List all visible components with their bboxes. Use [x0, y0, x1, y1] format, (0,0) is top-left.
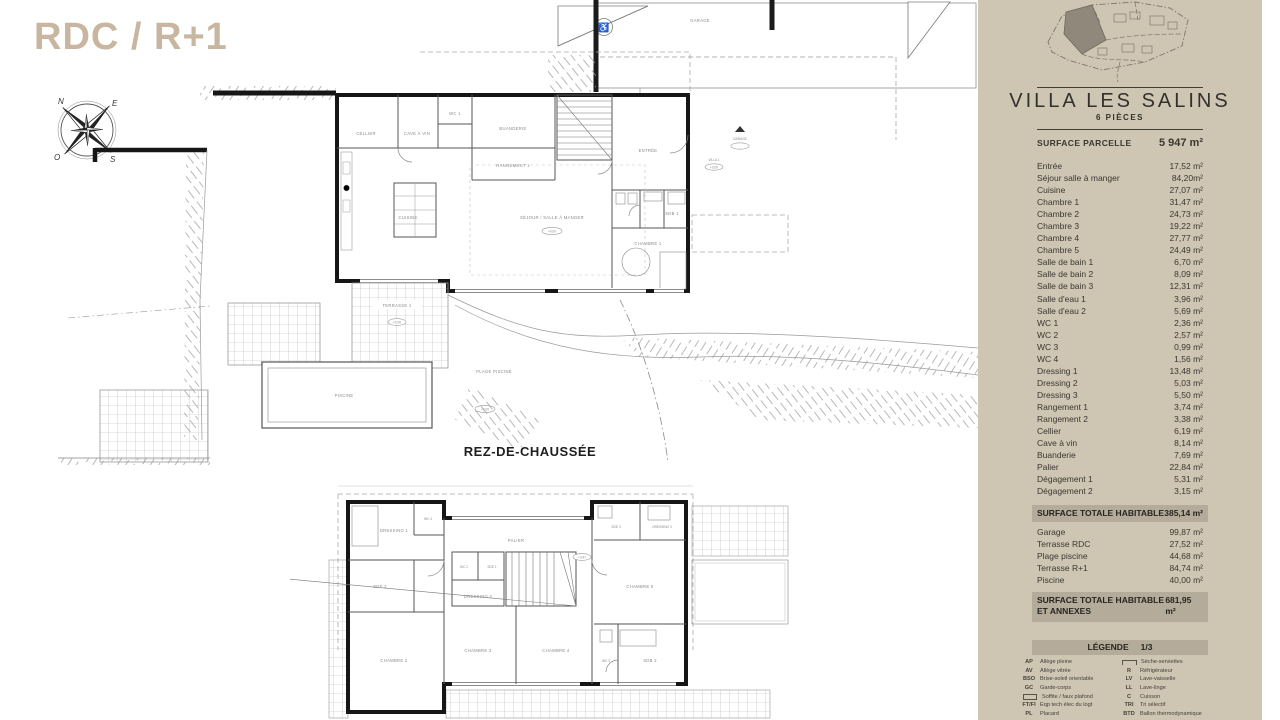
annex-row: Piscine 40,00 m² [1037, 574, 1203, 586]
room-row: WC 3 0,99 m² [1037, 341, 1203, 353]
room-label: ENTRÉE [639, 148, 658, 153]
room-row-value: 6,70 m² [1174, 256, 1203, 268]
annex-row-label: Piscine [1037, 574, 1064, 586]
room-row-label: Salle d'eau 2 [1037, 305, 1086, 317]
divider [1037, 87, 1203, 88]
room-row-value: 3,74 m² [1174, 401, 1203, 413]
legend-label: Allège vitrée [1040, 668, 1071, 674]
total-annexes-value: 681,95 m² [1165, 595, 1203, 622]
annex-row-label: Terrasse R+1 [1037, 562, 1088, 574]
level-marker: +3,47 [578, 556, 586, 560]
room-label: SDE 1 [487, 565, 496, 569]
room-row-value: 5,03 m² [1174, 377, 1203, 389]
room-row: Chambre 1 31,47 m² [1037, 196, 1203, 208]
room-label: BUANDERIE [499, 126, 526, 131]
room-row: Dressing 2 5,03 m² [1037, 377, 1203, 389]
room-label: CELLIER [356, 131, 376, 136]
room-label: CAVE À VIN [404, 131, 430, 136]
room-row-label: Cave à vin [1037, 437, 1077, 449]
annex-row-label: Plage piscine [1037, 550, 1088, 562]
room-row: Chambre 3 19,22 m² [1037, 220, 1203, 232]
level-marker: +0,00 [710, 166, 718, 170]
room-label: PISCINE [335, 393, 354, 398]
legend-row: Sèche-serviettes [1118, 658, 1228, 667]
room-row-value: 24,49 m² [1169, 244, 1203, 256]
room-row: Dressing 1 13,48 m² [1037, 365, 1203, 377]
room-row-value: 0,99 m² [1174, 341, 1203, 353]
room-row-label: Rangement 1 [1037, 401, 1088, 413]
legend-row: LL Lave-linge [1118, 684, 1228, 693]
total-annexes-label: SURFACE TOTALE HABITABLE ET ANNEXES [1037, 595, 1165, 622]
room-row-value: 12,31 m² [1169, 280, 1203, 292]
total-annexes-bar: SURFACE TOTALE HABITABLE ET ANNEXES 681,… [1032, 592, 1208, 622]
room-row-label: Chambre 3 [1037, 220, 1079, 232]
room-row: Cellier 6,19 m² [1037, 425, 1203, 437]
annex-row-label: Terrasse RDC [1037, 538, 1090, 550]
room-row-label: Dégagement 2 [1037, 485, 1093, 497]
legend-abbr: LV [1118, 676, 1140, 682]
room-label: WC 3 [602, 659, 610, 663]
legend-label: Allège pleine [1040, 659, 1072, 665]
room-row-label: Entrée [1037, 160, 1062, 172]
room-row: Chambre 5 24,49 m² [1037, 244, 1203, 256]
room-label: SÉJOUR / SALLE À MANGER [520, 215, 584, 220]
room-row-value: 17,52 m² [1169, 160, 1203, 172]
room-row: Séjour salle à manger 84,20m² [1037, 172, 1203, 184]
room-row: WC 1 2,36 m² [1037, 317, 1203, 329]
room-row-value: 24,73 m² [1169, 208, 1203, 220]
annex-row-label: Garage [1037, 526, 1065, 538]
room-row-value: 5,69 m² [1174, 305, 1203, 317]
annex-row-value: 84,74 m² [1169, 562, 1203, 574]
room-row-value: 19,22 m² [1169, 220, 1203, 232]
sidebar: VILLA LES SALINS 6 PIÈCES SURFACE PARCEL… [978, 0, 1262, 720]
legend-abbr: AV [1018, 668, 1040, 674]
legend-label: Tri sélectif [1140, 702, 1165, 708]
legend-label: Cuisson [1140, 694, 1160, 700]
room-row-label: WC 3 [1037, 341, 1058, 353]
annex-row-value: 44,68 m² [1169, 550, 1203, 562]
total-habitable-bar: SURFACE TOTALE HABITABLE 385,14 m² [1032, 505, 1208, 522]
legend-label: Brise-soleil orientable [1040, 676, 1093, 682]
room-row-label: Salle de bain 1 [1037, 256, 1093, 268]
room-row-value: 84,20m² [1172, 172, 1203, 184]
parcel-value: 5 947 m² [1159, 137, 1203, 149]
room-label: DRESSING 1 [380, 528, 409, 533]
legend-label: Placard [1040, 711, 1059, 717]
legend-label: Garde-corps [1040, 685, 1071, 691]
room-row-label: Dressing 3 [1037, 389, 1078, 401]
parcel-label: SURFACE PARCELLE [1037, 138, 1132, 148]
room-row-label: Rangement 2 [1037, 413, 1088, 425]
room-row-label: WC 2 [1037, 329, 1058, 341]
legend-abbr: TRI [1118, 702, 1140, 708]
room-label: WC 1 [449, 111, 461, 116]
legend-row: LV Lave-vaisselle [1118, 675, 1228, 684]
room-label: SDB 3 [643, 658, 657, 663]
plan-caption-rdc: REZ-DE-CHAUSSÉE [430, 444, 630, 459]
room-row: Chambre 2 24,73 m² [1037, 208, 1203, 220]
room-row-value: 5,50 m² [1174, 389, 1203, 401]
room-row-value: 3,96 m² [1174, 293, 1203, 305]
room-row-value: 27,07 m² [1169, 184, 1203, 196]
room-label: CHAMBRE 2 [380, 658, 408, 663]
villa-title: VILLA LES SALINS [978, 90, 1262, 113]
legend-label: Lave-linge [1140, 685, 1166, 691]
room-row: Salle d'eau 2 5,69 m² [1037, 305, 1203, 317]
annex-row: Terrasse RDC 27,52 m² [1037, 538, 1203, 550]
room-row-label: Buanderie [1037, 449, 1076, 461]
annex-row: Terrasse R+1 84,74 m² [1037, 562, 1203, 574]
room-row-value: 27,77 m² [1169, 232, 1203, 244]
room-label: CHAMBRE 3 [464, 648, 492, 653]
level-marker: +0,00 [393, 321, 401, 325]
legend-abbr [1122, 660, 1137, 665]
legend-abbr: R [1118, 668, 1140, 674]
room-row: Cave à vin 8,14 m² [1037, 437, 1203, 449]
room-label: CHAMBRE 1 [634, 241, 662, 246]
room-label: PLAGE PISCINE [476, 369, 512, 374]
total-habitable-value: 385,14 m² [1164, 505, 1203, 522]
room-label: RANGEMENT 1 [496, 163, 530, 168]
room-label: WC 4 [424, 517, 432, 521]
total-habitable-label: SURFACE TOTALE HABITABLE [1037, 505, 1164, 522]
annex-row-value: 27,52 m² [1169, 538, 1203, 550]
room-row-value: 3,38 m² [1174, 413, 1203, 425]
room-row-value: 13,48 m² [1169, 365, 1203, 377]
room-row-label: Palier [1037, 461, 1059, 473]
legend-header: LÉGENDE1/3 [1032, 640, 1208, 655]
room-label: SDE 3 [611, 525, 620, 529]
legend-abbr [1023, 694, 1037, 700]
room-row-label: Cuisine [1037, 184, 1065, 196]
room-row-value: 2,36 m² [1174, 317, 1203, 329]
room-row-label: Chambre 4 [1037, 232, 1079, 244]
room-row-label: Chambre 5 [1037, 244, 1079, 256]
room-row: Salle de bain 2 8,09 m² [1037, 268, 1203, 280]
legend-label: Ballon thermodynamique [1140, 711, 1202, 717]
room-row-label: Chambre 2 [1037, 208, 1079, 220]
room-row-label: Cellier [1037, 425, 1061, 437]
legend-page-number: 1/3 [1141, 642, 1153, 652]
room-row-label: WC 4 [1037, 353, 1058, 365]
annex-row: Garage 99,87 m² [1037, 526, 1203, 538]
room-row: Dégagement 1 5,31 m² [1037, 473, 1203, 485]
legend-abbr: LL [1118, 685, 1140, 691]
floor-plan-r1: DRESSING 1 WC 4 SDE 2 CHAMBRE 2 PALIER W… [290, 470, 800, 720]
legend-abbr: AP [1018, 659, 1040, 665]
divider [1037, 129, 1203, 130]
room-label: SDE 2 [373, 584, 387, 589]
room-row-label: Dressing 1 [1037, 365, 1078, 377]
room-label: WC 2 [460, 565, 468, 569]
room-row-value: 3,15 m² [1174, 485, 1203, 497]
villa-marker: VILLA 1 [708, 158, 719, 162]
legend-label: Sèche-serviettes [1141, 659, 1183, 665]
parcel-row: SURFACE PARCELLE 5 947 m² [1037, 137, 1203, 149]
room-row: Salle de bain 1 6,70 m² [1037, 256, 1203, 268]
room-row: Entrée 17,52 m² [1037, 160, 1203, 172]
room-label: DRESSING 2 [464, 594, 493, 599]
page: RDC / R+1 N E S O [0, 0, 1280, 720]
legend-abbr: BTD [1118, 711, 1140, 717]
legend-abbr: BSO [1018, 676, 1040, 682]
room-row-value: 31,47 m² [1169, 196, 1203, 208]
annex-list: Garage 99,87 m² Terrasse RDC 27,52 m² Pl… [1037, 526, 1203, 586]
floor-plan-rdc: ♿ GARAGE [40, 0, 980, 465]
room-row: WC 2 2,57 m² [1037, 329, 1203, 341]
legend-row: C Cuisson [1118, 692, 1228, 701]
legend-label: Soffite / faux plafond [1042, 694, 1093, 700]
room-label: CUISINE [398, 215, 417, 220]
room-row-label: Salle de bain 2 [1037, 268, 1093, 280]
room-row-label: Dressing 2 [1037, 377, 1078, 389]
legend-row: BTD Ballon thermodynamique [1118, 710, 1228, 719]
room-list: Entrée 17,52 m² Séjour salle à manger 84… [1037, 160, 1203, 497]
legend-title: LÉGENDE [1088, 642, 1129, 652]
legend-row: R Réfrigérateur [1118, 667, 1228, 676]
room-row-label: WC 1 [1037, 317, 1058, 329]
room-row: Dégagement 2 3,15 m² [1037, 485, 1203, 497]
room-label: CHAMBRE 5 [626, 584, 654, 589]
annex-row-value: 40,00 m² [1169, 574, 1203, 586]
room-row-value: 6,19 m² [1174, 425, 1203, 437]
room-row-value: 8,14 m² [1174, 437, 1203, 449]
room-row-value: 1,56 m² [1174, 353, 1203, 365]
room-row: Rangement 1 3,74 m² [1037, 401, 1203, 413]
room-label: PALIER [508, 538, 524, 543]
room-row-value: 22,84 m² [1169, 461, 1203, 473]
legend-abbr: FT/FI [1018, 702, 1040, 708]
room-label: SDB 1 [665, 211, 679, 216]
room-row: Palier 22,84 m² [1037, 461, 1203, 473]
room-row-label: Salle de bain 3 [1037, 280, 1093, 292]
room-row: Rangement 2 3,38 m² [1037, 413, 1203, 425]
room-label: DRESSING 3 [652, 525, 672, 529]
room-row-value: 8,09 m² [1174, 268, 1203, 280]
room-row: Dressing 3 5,50 m² [1037, 389, 1203, 401]
room-row: Salle de bain 3 12,31 m² [1037, 280, 1203, 292]
legend-abbr: C [1118, 694, 1140, 700]
room-label: TERRASSE 1 [382, 303, 411, 308]
site-plan-thumbnail [1030, 0, 1210, 82]
room-row-label: Dégagement 1 [1037, 473, 1093, 485]
room-label: CHAMBRE 4 [542, 648, 570, 653]
legend-label: Réfrigérateur [1140, 668, 1173, 674]
legend-row: TRI Tri sélectif [1118, 701, 1228, 710]
legend-right-column: Sèche-serviettes R Réfrigérateur LV Lave… [1118, 658, 1228, 718]
room-row: Cuisine 27,07 m² [1037, 184, 1203, 196]
annex-row-value: 99,87 m² [1169, 526, 1203, 538]
room-row-label: Chambre 1 [1037, 196, 1079, 208]
room-label-garage: GARAGE [690, 18, 710, 23]
room-row-label: Séjour salle à manger [1037, 172, 1120, 184]
room-row-label: Salle d'eau 1 [1037, 293, 1086, 305]
level-marker: +0,00 [548, 230, 556, 234]
villa-subtitle: 6 PIÈCES [978, 113, 1262, 122]
legend-abbr: PL [1018, 711, 1040, 717]
room-row: Salle d'eau 1 3,96 m² [1037, 293, 1203, 305]
svg-text:♿: ♿ [598, 22, 609, 33]
garage-marker: GARAGE [733, 137, 747, 141]
annex-row: Plage piscine 44,68 m² [1037, 550, 1203, 562]
legend-abbr: GC [1018, 685, 1040, 691]
room-row: Chambre 4 27,77 m² [1037, 232, 1203, 244]
room-row-value: 2,57 m² [1174, 329, 1203, 341]
legend-label: Eqp tech élec du logt [1040, 702, 1092, 708]
room-row: WC 4 1,56 m² [1037, 353, 1203, 365]
room-row-value: 7,69 m² [1174, 449, 1203, 461]
room-row-value: 5,31 m² [1174, 473, 1203, 485]
room-row: Buanderie 7,69 m² [1037, 449, 1203, 461]
legend-label: Lave-vaisselle [1140, 676, 1175, 682]
